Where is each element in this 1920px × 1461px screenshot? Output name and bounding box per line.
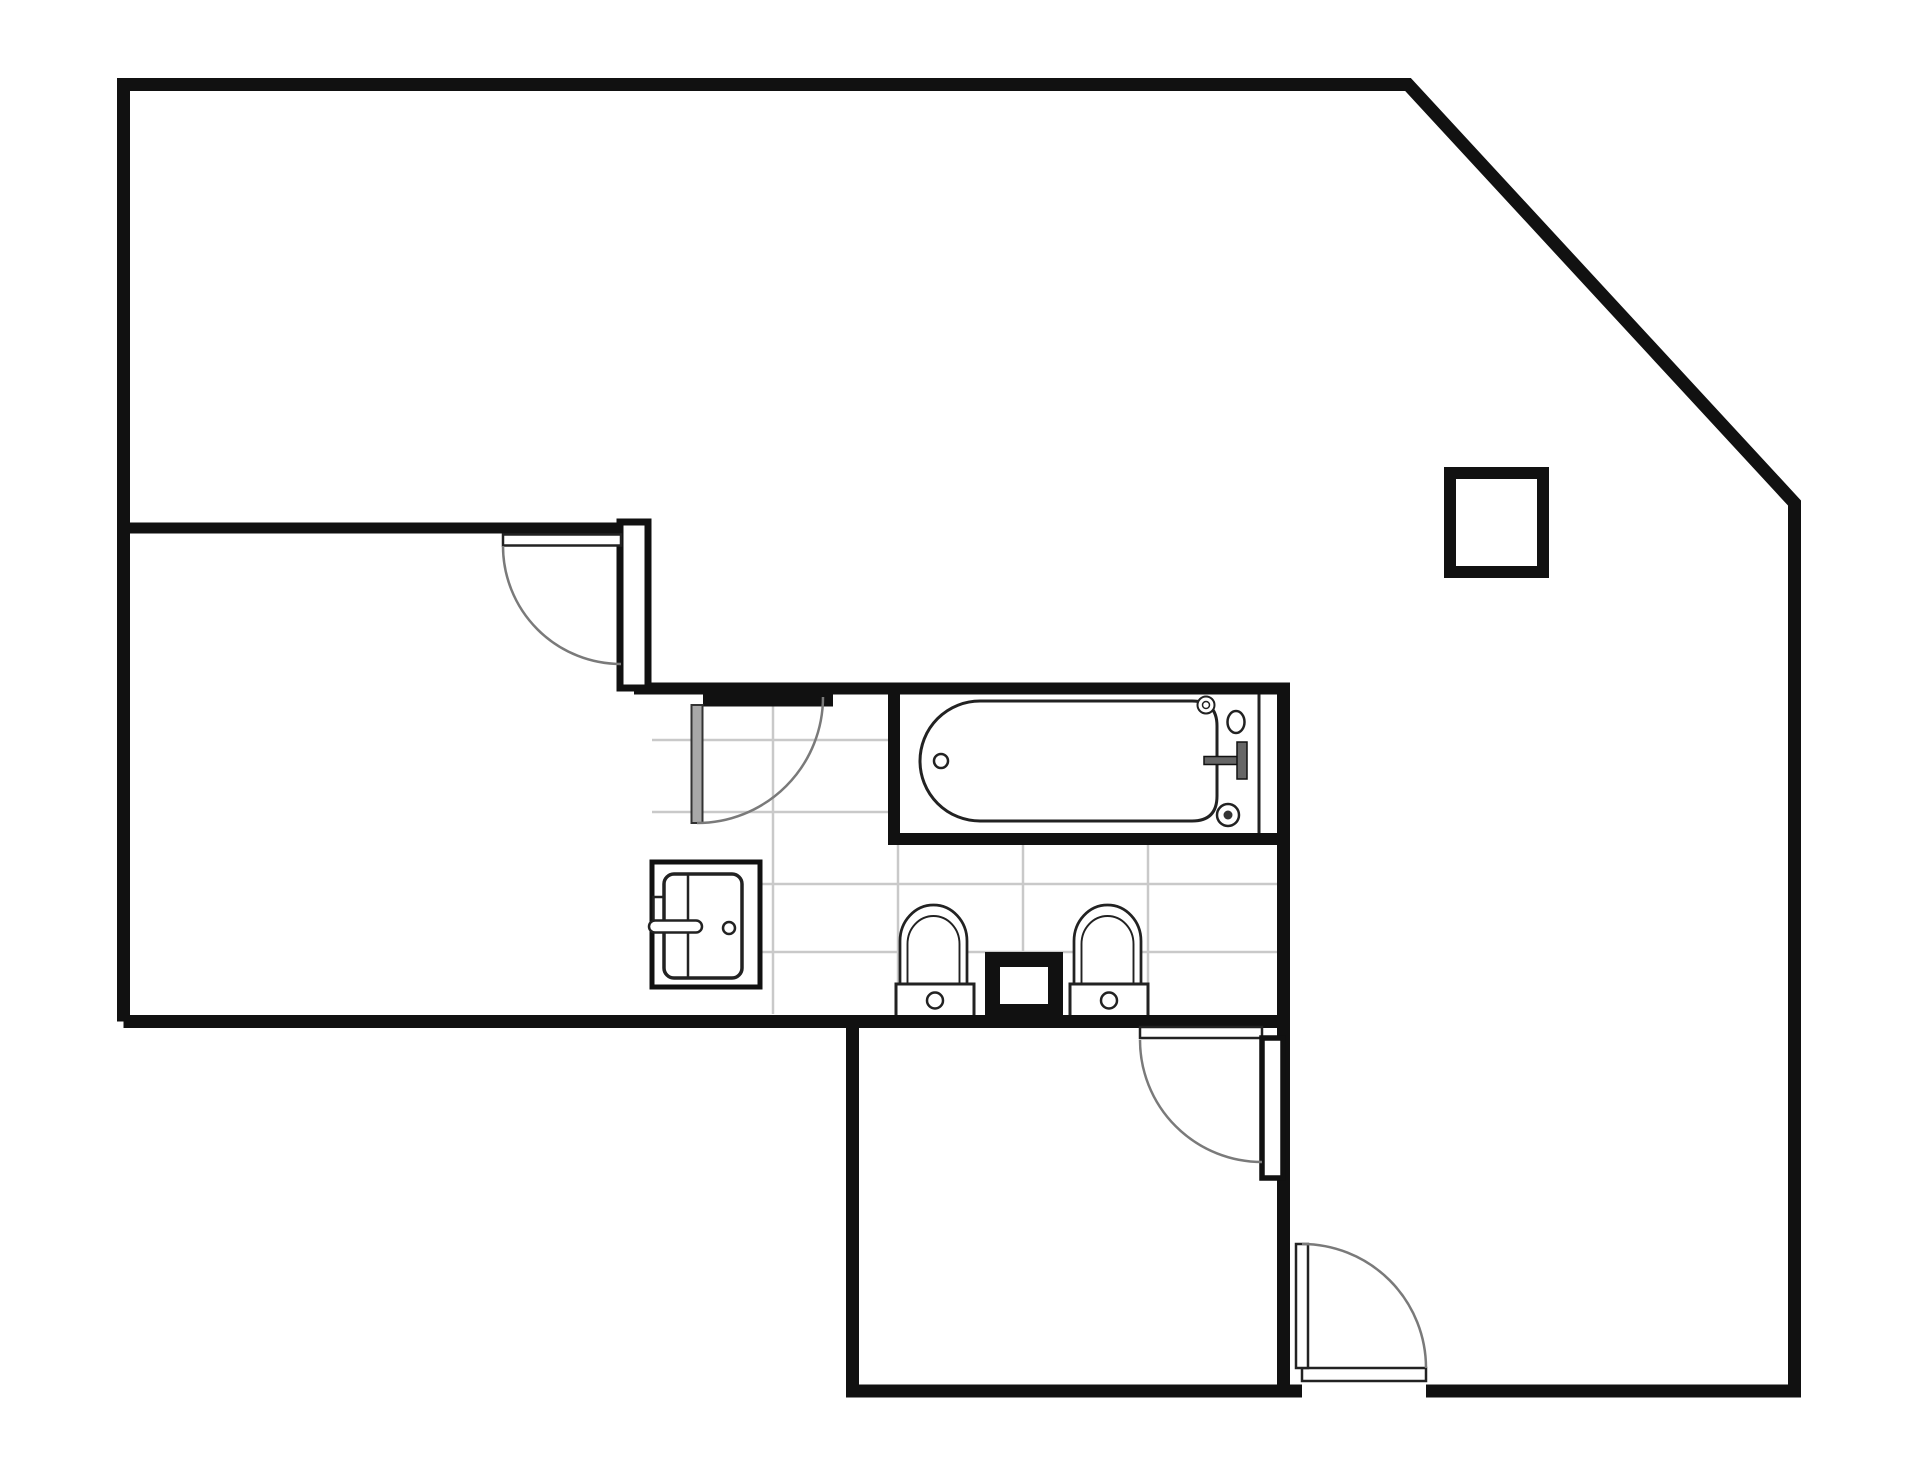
- entry-door-arc: [1302, 1244, 1426, 1368]
- sink-faucet-stub: [654, 897, 664, 923]
- floor-plan-page: [0, 0, 1920, 1461]
- toilet-1-button: [927, 993, 943, 1009]
- bathtub-tap-bottom-dot: [1224, 811, 1233, 820]
- entry-door-header: [1302, 1368, 1426, 1381]
- bathroom-door-arc: [697, 697, 823, 823]
- bottom-room-door-arc: [1140, 1040, 1262, 1162]
- column-square: [1450, 473, 1543, 572]
- left-room-door-leaf: [503, 535, 621, 546]
- bottom-room-door-frame: [1262, 1038, 1283, 1178]
- bathtub-handle-stem: [1204, 757, 1240, 765]
- duct-shaft-inner: [1000, 967, 1048, 1004]
- toilet-1-bowl-outer: [900, 905, 967, 985]
- bathtub-spout: [1228, 711, 1245, 733]
- sink-faucet-bar: [649, 921, 702, 933]
- bathtub-handle-bar: [1237, 742, 1247, 779]
- outer-wall-left-section: [124, 1022, 1303, 1392]
- door-jamb-frame: [620, 522, 648, 688]
- toilet-2-bowl-outer: [1074, 905, 1141, 985]
- bathroom-door-leaf: [692, 705, 703, 823]
- sink-drain: [723, 922, 735, 934]
- bathtub-tap-top-dot: [1203, 702, 1210, 709]
- bathroom-door-header: [703, 695, 833, 707]
- entry-door-leaf: [1296, 1244, 1308, 1368]
- floor-plan-drawing: [0, 0, 1920, 1461]
- bathtub-body: [920, 701, 1217, 821]
- toilet-2-button: [1101, 993, 1117, 1009]
- bottom-room-door-leaf: [1140, 1027, 1262, 1038]
- bathtub-drain: [934, 754, 948, 768]
- left-room-door-arc: [503, 546, 621, 664]
